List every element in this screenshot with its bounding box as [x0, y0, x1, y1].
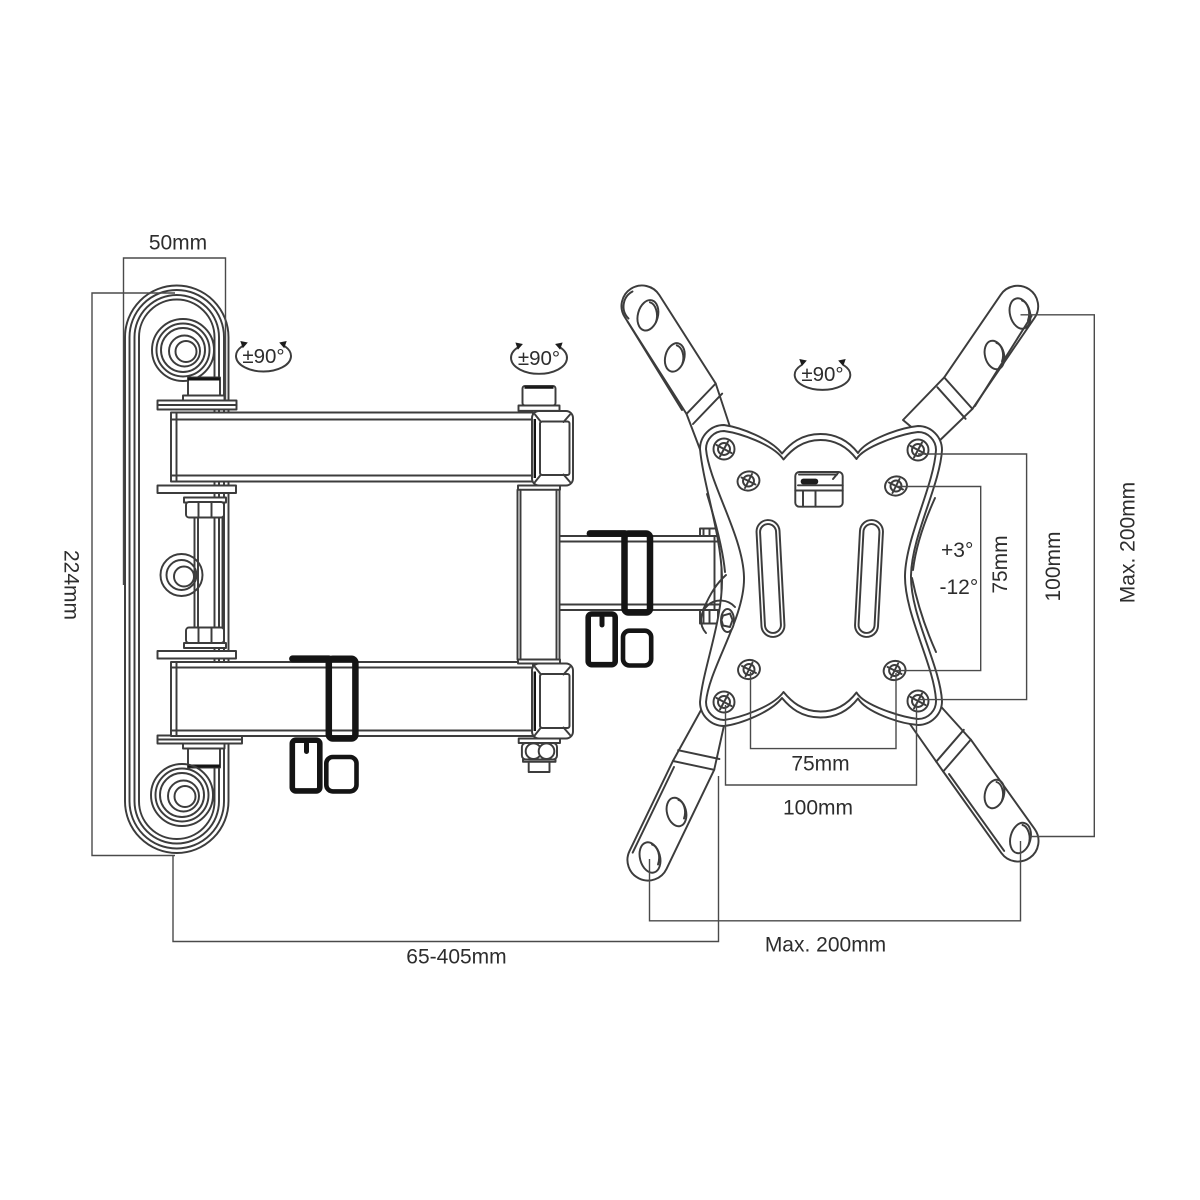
svg-text:75mm: 75mm: [989, 535, 1012, 593]
svg-text:50mm: 50mm: [149, 232, 207, 255]
svg-text:75mm: 75mm: [791, 753, 849, 776]
svg-text:+3°: +3°: [941, 539, 973, 562]
svg-text:±90°: ±90°: [242, 345, 284, 368]
svg-text:100mm: 100mm: [1042, 531, 1065, 601]
svg-text:±90°: ±90°: [518, 347, 560, 370]
svg-text:100mm: 100mm: [783, 797, 853, 820]
svg-text:Max. 200mm: Max. 200mm: [765, 934, 886, 957]
svg-text:±90°: ±90°: [801, 363, 843, 386]
svg-text:224mm: 224mm: [60, 550, 83, 620]
svg-text:65-405mm: 65-405mm: [406, 946, 506, 969]
svg-text:-12°: -12°: [940, 576, 979, 599]
svg-text:Max. 200mm: Max. 200mm: [1117, 482, 1140, 603]
